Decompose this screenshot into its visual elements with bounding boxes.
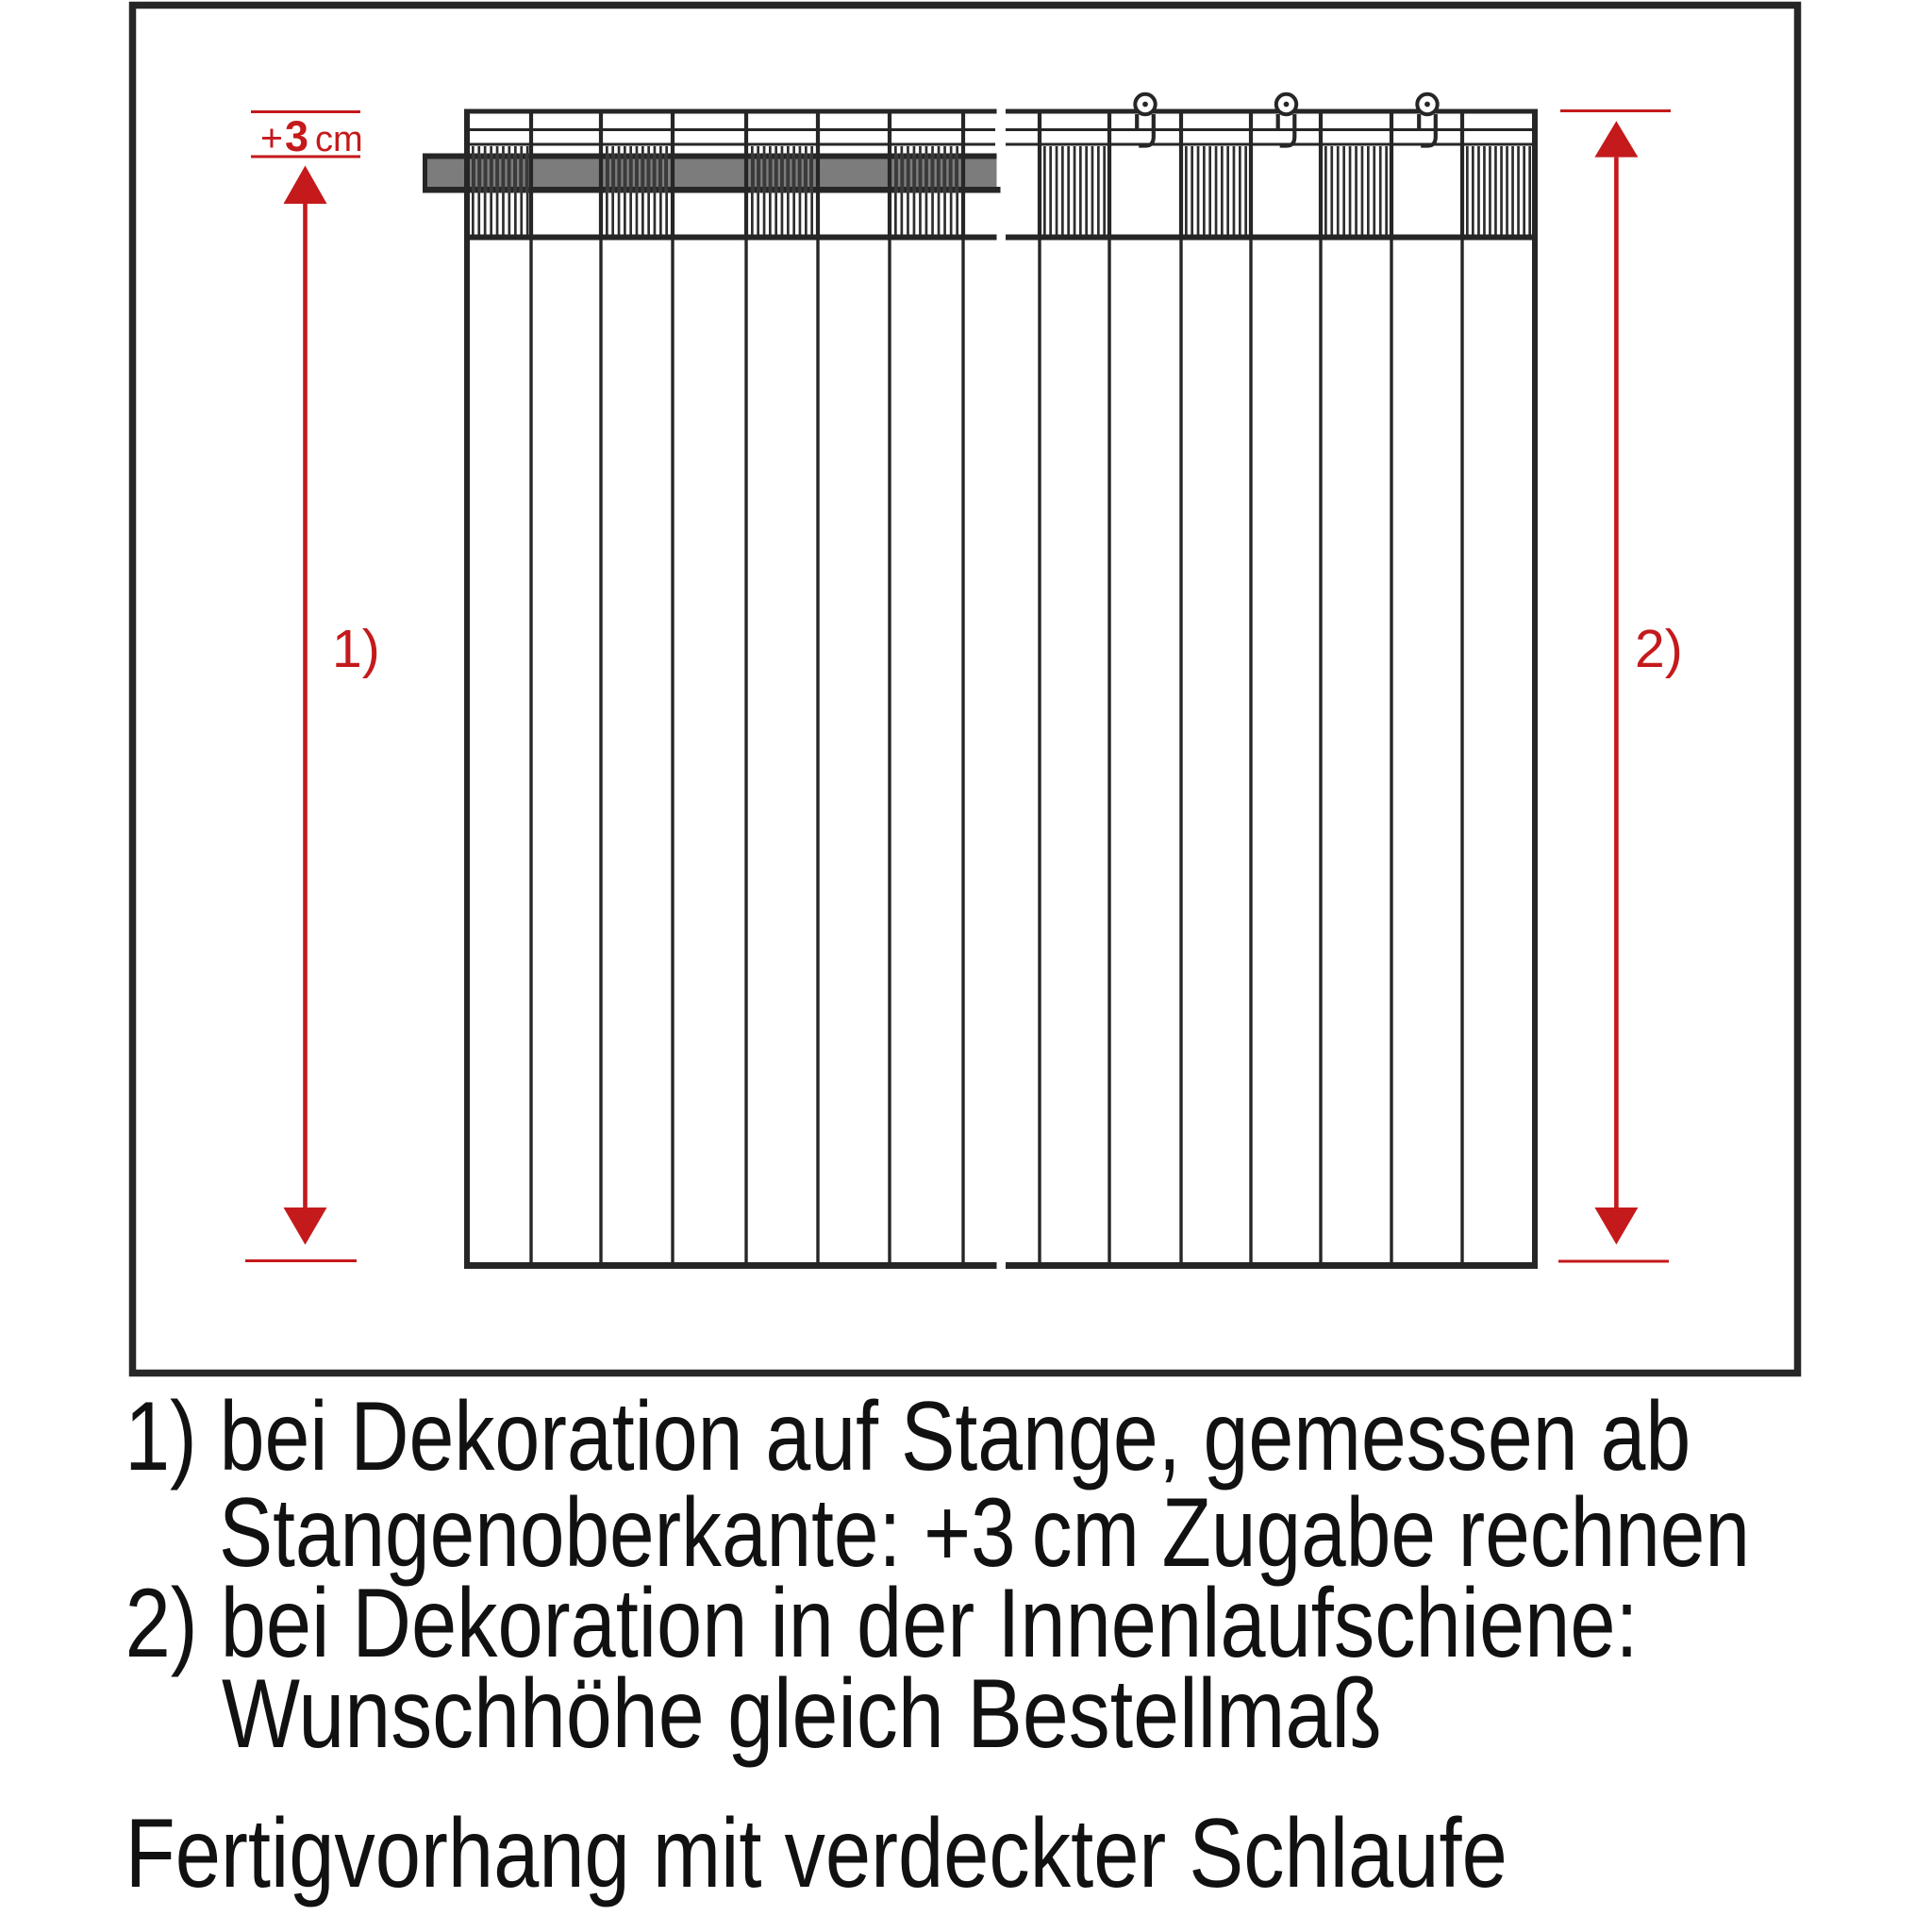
svg-text:Fertigvorhang mit verdeckter S: Fertigvorhang mit verdeckter Schlaufe — [125, 1799, 1507, 1908]
svg-text:+: + — [260, 116, 283, 159]
svg-text:Wunschhöhe gleich Bestellmaß: Wunschhöhe gleich Bestellmaß — [222, 1659, 1382, 1769]
svg-text:1): 1) — [332, 619, 380, 679]
svg-text:cm: cm — [315, 120, 363, 159]
svg-text:2): 2) — [1635, 619, 1683, 679]
svg-text:3: 3 — [285, 112, 308, 160]
svg-text:1) bei Dekoration auf Stange,: 1) bei Dekoration auf Stange, gemessen a… — [125, 1382, 1690, 1491]
